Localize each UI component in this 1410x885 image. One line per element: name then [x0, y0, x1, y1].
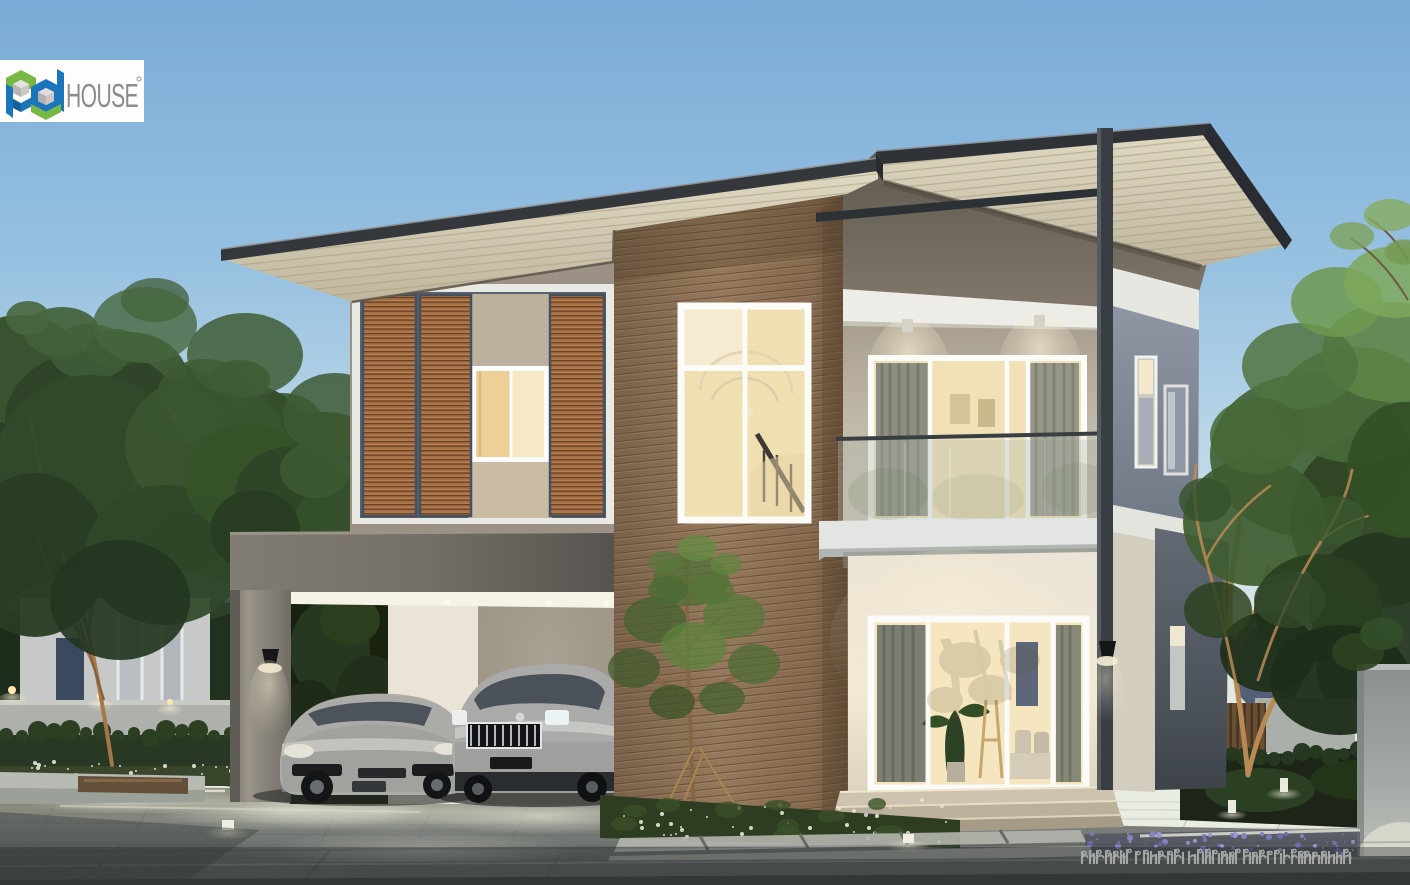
svg-text:HOUSE: HOUSE — [66, 77, 138, 114]
